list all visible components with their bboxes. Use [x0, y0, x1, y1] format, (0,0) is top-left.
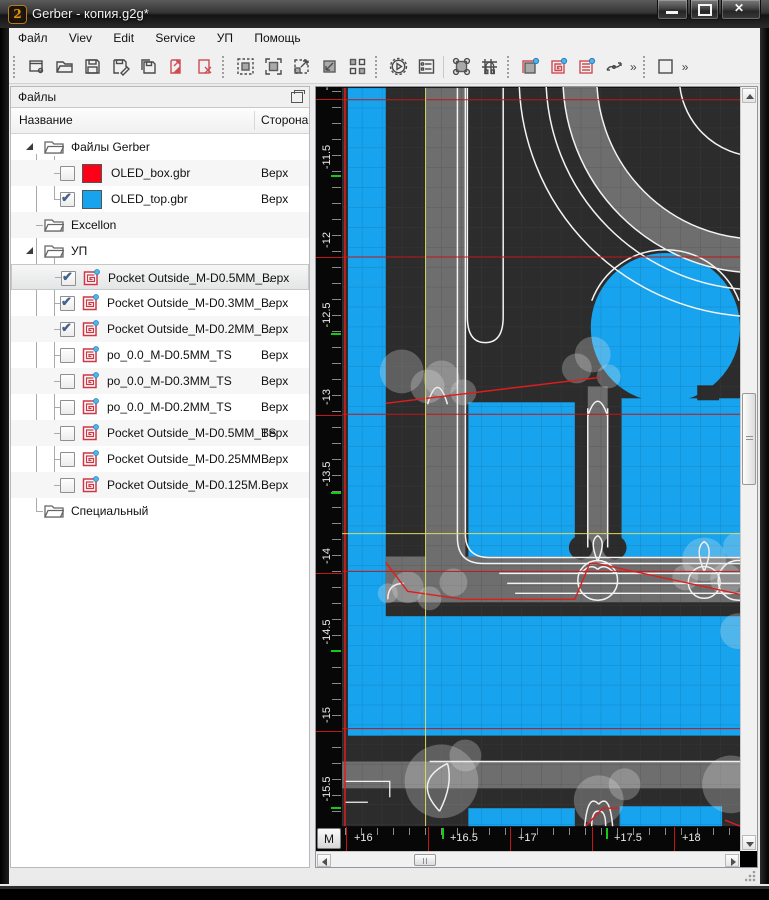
tree-row-folder[interactable]: УП	[11, 238, 309, 264]
ruler-label: -15	[321, 693, 333, 737]
job-checkbox[interactable]	[60, 426, 75, 441]
ruler-label: -15.5	[321, 767, 333, 811]
pocket-outside-icon	[521, 57, 540, 76]
arrow-left-icon	[322, 858, 327, 866]
layer-side: Верх	[261, 192, 288, 206]
job-side: Верх	[261, 296, 288, 310]
ruler-label: +18	[682, 832, 701, 844]
zoom-out-icon	[292, 57, 311, 76]
job-side: Верх	[261, 400, 288, 414]
job-side: Верх	[261, 478, 288, 492]
tree-dash	[36, 225, 43, 226]
ruler-green-tick	[606, 828, 608, 839]
ruler-ticks	[332, 91, 341, 827]
job-label: Pocket Outside_M-D0.3MM_...	[107, 296, 271, 310]
titlebar[interactable]: 2 Gerber - копия.g2g* ✕	[0, 0, 769, 29]
tree-row-job[interactable]: Pocket Outside_M-D0.25MM... Верх	[11, 446, 309, 472]
gcode-icon	[82, 424, 99, 441]
save-copy-button[interactable]	[134, 54, 162, 80]
gcode-icon	[82, 346, 99, 363]
tree-row-job[interactable]: ✔ Pocket Outside_M-D0.3MM_... Верх	[11, 290, 309, 316]
minimize-icon	[666, 11, 678, 14]
toolbar-drag-handle[interactable]	[507, 56, 513, 78]
window-border-left	[0, 28, 9, 900]
job-checkbox[interactable]	[60, 400, 75, 415]
arrow-up-icon	[746, 94, 754, 99]
zoom-in-button[interactable]	[315, 54, 343, 80]
job-checkbox[interactable]: ✔	[60, 322, 75, 337]
folder-icon	[44, 139, 64, 155]
ruler-red-line	[674, 827, 675, 851]
app-icon: 2	[8, 5, 27, 24]
ruler-label: -14.5	[321, 610, 333, 654]
tree-row-layer[interactable]: OLED_box.gbr Верх	[11, 160, 309, 186]
scroll-left-button[interactable]	[317, 854, 331, 867]
job-label: po_0.0_M-D0.5MM_TS	[107, 348, 232, 362]
gcode-icon	[83, 269, 100, 286]
edit-nodes-button[interactable]	[447, 54, 475, 80]
horizontal-ruler: +16 +16.5 +17 +17.5 +18 M	[316, 827, 740, 851]
job-checkbox[interactable]	[60, 374, 75, 389]
import-file-icon	[167, 57, 186, 76]
tree-row-layer[interactable]: ✔ OLED_top.gbr Верх	[11, 186, 309, 212]
gcode-icon	[82, 450, 99, 467]
menu-help[interactable]: Помощь	[245, 28, 309, 50]
ruler-green-tick	[442, 828, 444, 839]
new-project-icon	[27, 57, 46, 76]
folder-label: Excellon	[71, 218, 116, 232]
check-icon: ✔	[61, 190, 72, 206]
job-side: Верх	[261, 452, 288, 466]
import-file-button[interactable]	[162, 54, 190, 80]
save-as-icon	[111, 57, 130, 76]
job-checkbox[interactable]	[60, 348, 75, 363]
expander-icon[interactable]	[26, 143, 33, 150]
layer-checkbox[interactable]: ✔	[60, 192, 75, 207]
save-icon	[83, 57, 102, 76]
toolbar-drag-handle[interactable]	[13, 56, 19, 78]
close-file-button[interactable]	[190, 54, 218, 80]
layer-label: OLED_top.gbr	[111, 192, 188, 206]
menu-edit[interactable]: Edit	[104, 28, 143, 50]
scroll-down-button[interactable]	[742, 835, 756, 850]
zoom-in-icon	[320, 57, 339, 76]
open-folder-icon	[55, 57, 74, 76]
job-side: Верх	[262, 271, 289, 285]
tree-row-folder[interactable]: Файлы Gerber	[11, 134, 309, 160]
menu-file[interactable]: Файл	[9, 28, 57, 50]
toolbar-drag-handle[interactable]	[222, 56, 228, 78]
vertical-ruler: -11 -11.5 -12 -12.5 -13 -13.5 -14 -14.5 …	[316, 87, 342, 827]
minimize-button[interactable]	[657, 0, 688, 20]
edit-nodes-icon	[452, 57, 471, 76]
pocket-raster-icon	[577, 57, 596, 76]
ruler-label: -12	[321, 218, 333, 262]
float-panel-icon[interactable]	[291, 92, 303, 103]
job-side: Верх	[261, 374, 288, 388]
save-copy-icon	[139, 57, 158, 76]
folder-label: УП	[71, 244, 87, 258]
zoom-out-button[interactable]	[287, 54, 315, 80]
snap-magnet-icon	[480, 57, 499, 76]
tile-windows-button[interactable]	[343, 54, 371, 80]
ruler-label: -12.5	[321, 293, 333, 337]
zoom-window-icon	[264, 57, 283, 76]
pocket-raster-button[interactable]	[572, 54, 600, 80]
menu-service[interactable]: Service	[146, 28, 204, 50]
shape-rect-icon	[656, 57, 675, 76]
check-icon: ✔	[61, 320, 72, 336]
job-checkbox[interactable]: ✔	[61, 271, 76, 286]
folder-icon	[44, 503, 64, 519]
zoom-extents-button[interactable]	[231, 54, 259, 80]
job-label: po_0.0_M-D0.2MM_TS	[107, 400, 232, 414]
pcb-canvas[interactable]	[342, 87, 740, 827]
ruler-ticks	[345, 828, 740, 835]
new-project-button[interactable]	[22, 54, 50, 80]
expander-icon[interactable]	[26, 247, 33, 254]
vertical-scrollbar[interactable]	[740, 87, 757, 851]
maximize-icon	[698, 4, 712, 16]
tree-row-job[interactable]: po_0.0_M-D0.2MM_TS Верх	[11, 394, 309, 420]
job-checkbox[interactable]	[60, 478, 75, 493]
toolbar-overflow[interactable]: »	[680, 60, 691, 74]
close-icon: ✕	[734, 1, 744, 15]
menu-view[interactable]: Viev	[60, 28, 101, 50]
ruler-label: -11	[321, 87, 333, 105]
layer-checkbox[interactable]	[60, 166, 75, 181]
job-checkbox[interactable]: ✔	[60, 296, 75, 311]
window-border-right	[760, 28, 769, 900]
cam-viewport[interactable]: -11 -11.5 -12 -12.5 -13 -13.5 -14 -14.5 …	[315, 86, 758, 868]
postprocess-button[interactable]	[384, 54, 412, 80]
tree-dash	[36, 511, 43, 512]
client-area: Файл Viev Edit Service УП Помощь	[9, 28, 760, 884]
check-icon: ✔	[62, 269, 73, 285]
arrow-down-icon	[746, 842, 754, 847]
ruler-label: -14	[321, 534, 333, 578]
tree-row-folder[interactable]: Excellon	[11, 212, 309, 238]
tree-row-job[interactable]: ✔ Pocket Outside_M-D0.5MM_... Верх	[11, 264, 309, 290]
thumb-grip	[423, 858, 429, 864]
thumb-grip	[746, 436, 753, 442]
ruler-label: -13	[321, 375, 333, 419]
maximize-button[interactable]	[690, 0, 719, 20]
ruler-label: +17.5	[614, 832, 642, 844]
smooth-curve-button[interactable]	[600, 54, 628, 80]
toolbar-drag-handle[interactable]	[643, 56, 649, 78]
resize-grip[interactable]	[745, 871, 756, 882]
ruler-red-line	[592, 827, 593, 851]
ruler-label: -13.5	[321, 452, 333, 496]
toolbar: » »	[9, 50, 760, 84]
project-settings-icon	[417, 57, 436, 76]
close-file-icon	[195, 57, 214, 76]
menu-up[interactable]: УП	[208, 28, 242, 50]
column-divider[interactable]	[254, 111, 255, 130]
pocket-spiral-icon	[549, 57, 568, 76]
tree-row-job[interactable]: po_0.0_M-D0.5MM_TS Верх	[11, 342, 309, 368]
gcode-icon	[82, 372, 99, 389]
zoom-window-button[interactable]	[259, 54, 287, 80]
folder-icon	[44, 243, 64, 259]
shape-rect-button[interactable]	[652, 54, 680, 80]
column-name[interactable]: Название	[19, 113, 73, 127]
toolbar-separator	[443, 56, 444, 78]
gcode-icon	[82, 320, 99, 337]
tree-row-job[interactable]: ✔ Pocket Outside_M-D0.2MM_... Верх	[11, 316, 309, 342]
horizontal-scrollbar[interactable]	[316, 851, 740, 867]
job-side: Верх	[261, 426, 288, 440]
gcode-icon	[82, 398, 99, 415]
statusbar	[9, 868, 760, 884]
tree-row-job[interactable]: Pocket Outside_M-D0.125M... Верх	[11, 472, 309, 498]
job-label: Pocket Outside_M-D0.5MM_...	[108, 271, 272, 285]
tree-column-header[interactable]: Название Сторона	[11, 108, 309, 134]
pocket-outside-button[interactable]	[516, 54, 544, 80]
window-title: Gerber - копия.g2g*	[32, 6, 149, 21]
layer-color-swatch	[82, 190, 102, 209]
job-label: Pocket Outside_M-D0.2MM_...	[107, 322, 271, 336]
tree-row-job[interactable]: Pocket Outside_M-D0.5MM_TS Верх	[11, 420, 309, 446]
files-panel: Файлы Название Сторона Файлы Gerber	[10, 86, 310, 868]
horizontal-scroll-thumb[interactable]	[414, 854, 436, 866]
arrow-right-icon	[731, 858, 736, 866]
job-checkbox[interactable]	[60, 452, 75, 467]
layer-color-swatch	[82, 164, 102, 183]
save-button[interactable]	[78, 54, 106, 80]
tree-row-job[interactable]: po_0.0_M-D0.3MM_TS Верх	[11, 368, 309, 394]
window-border-bottom	[0, 884, 769, 900]
folder-icon	[44, 217, 64, 233]
app-window: 2 Gerber - копия.g2g* ✕ Файл Viev Edit S…	[0, 0, 769, 900]
job-label: Pocket Outside_M-D0.125M...	[107, 478, 268, 492]
toolbar-drag-handle[interactable]	[375, 56, 381, 78]
job-side: Верх	[261, 322, 288, 336]
job-side: Верх	[261, 348, 288, 362]
toolbar-overflow[interactable]: »	[628, 60, 639, 74]
files-panel-header[interactable]: Файлы	[11, 87, 309, 108]
gcode-icon	[82, 476, 99, 493]
ruler-label: +17	[518, 832, 537, 844]
scrollbar-corner	[740, 851, 757, 867]
scroll-right-button[interactable]	[725, 854, 739, 867]
postprocess-gear-icon	[389, 57, 408, 76]
open-button[interactable]	[50, 54, 78, 80]
snap-magnet-button[interactable]	[475, 54, 503, 80]
tile-windows-icon	[348, 57, 367, 76]
zoom-extents-icon	[236, 57, 255, 76]
ruler-red-line	[346, 827, 347, 851]
job-label: Pocket Outside_M-D0.5MM_TS	[107, 426, 276, 440]
smooth-curve-icon	[605, 57, 624, 76]
close-button[interactable]: ✕	[721, 0, 761, 20]
folder-label: Специальный	[71, 504, 148, 518]
ruler-red-line	[428, 827, 429, 851]
pocket-spiral-button[interactable]	[544, 54, 572, 80]
ruler-label: +16	[354, 832, 373, 844]
job-label: Pocket Outside_M-D0.25MM...	[107, 452, 271, 466]
job-label: po_0.0_M-D0.3MM_TS	[107, 374, 232, 388]
pcb-drawing	[342, 87, 740, 827]
scroll-up-button[interactable]	[742, 88, 756, 103]
column-side[interactable]: Сторона	[261, 113, 308, 127]
grid-overlay	[342, 88, 740, 826]
ruler-red-line	[510, 827, 511, 851]
gcode-icon	[82, 294, 99, 311]
files-tree: Файлы Gerber OLED_box.gbr Верх ✔ OLED_to…	[11, 134, 309, 867]
save-as-button[interactable]	[106, 54, 134, 80]
layer-label: OLED_box.gbr	[111, 166, 190, 180]
layer-side: Верх	[261, 166, 288, 180]
files-panel-title: Файлы	[18, 90, 56, 104]
ruler-label: -11.5	[321, 135, 333, 179]
tree-row-folder[interactable]: Специальный	[11, 498, 309, 524]
vertical-scroll-thumb[interactable]	[742, 393, 756, 485]
project-settings-button[interactable]	[412, 54, 440, 80]
folder-label: Файлы Gerber	[71, 140, 150, 154]
units-button[interactable]: M	[317, 828, 341, 849]
menubar: Файл Viev Edit Service УП Помощь	[9, 28, 760, 51]
ruler-label: +16.5	[450, 832, 478, 844]
check-icon: ✔	[61, 294, 72, 310]
